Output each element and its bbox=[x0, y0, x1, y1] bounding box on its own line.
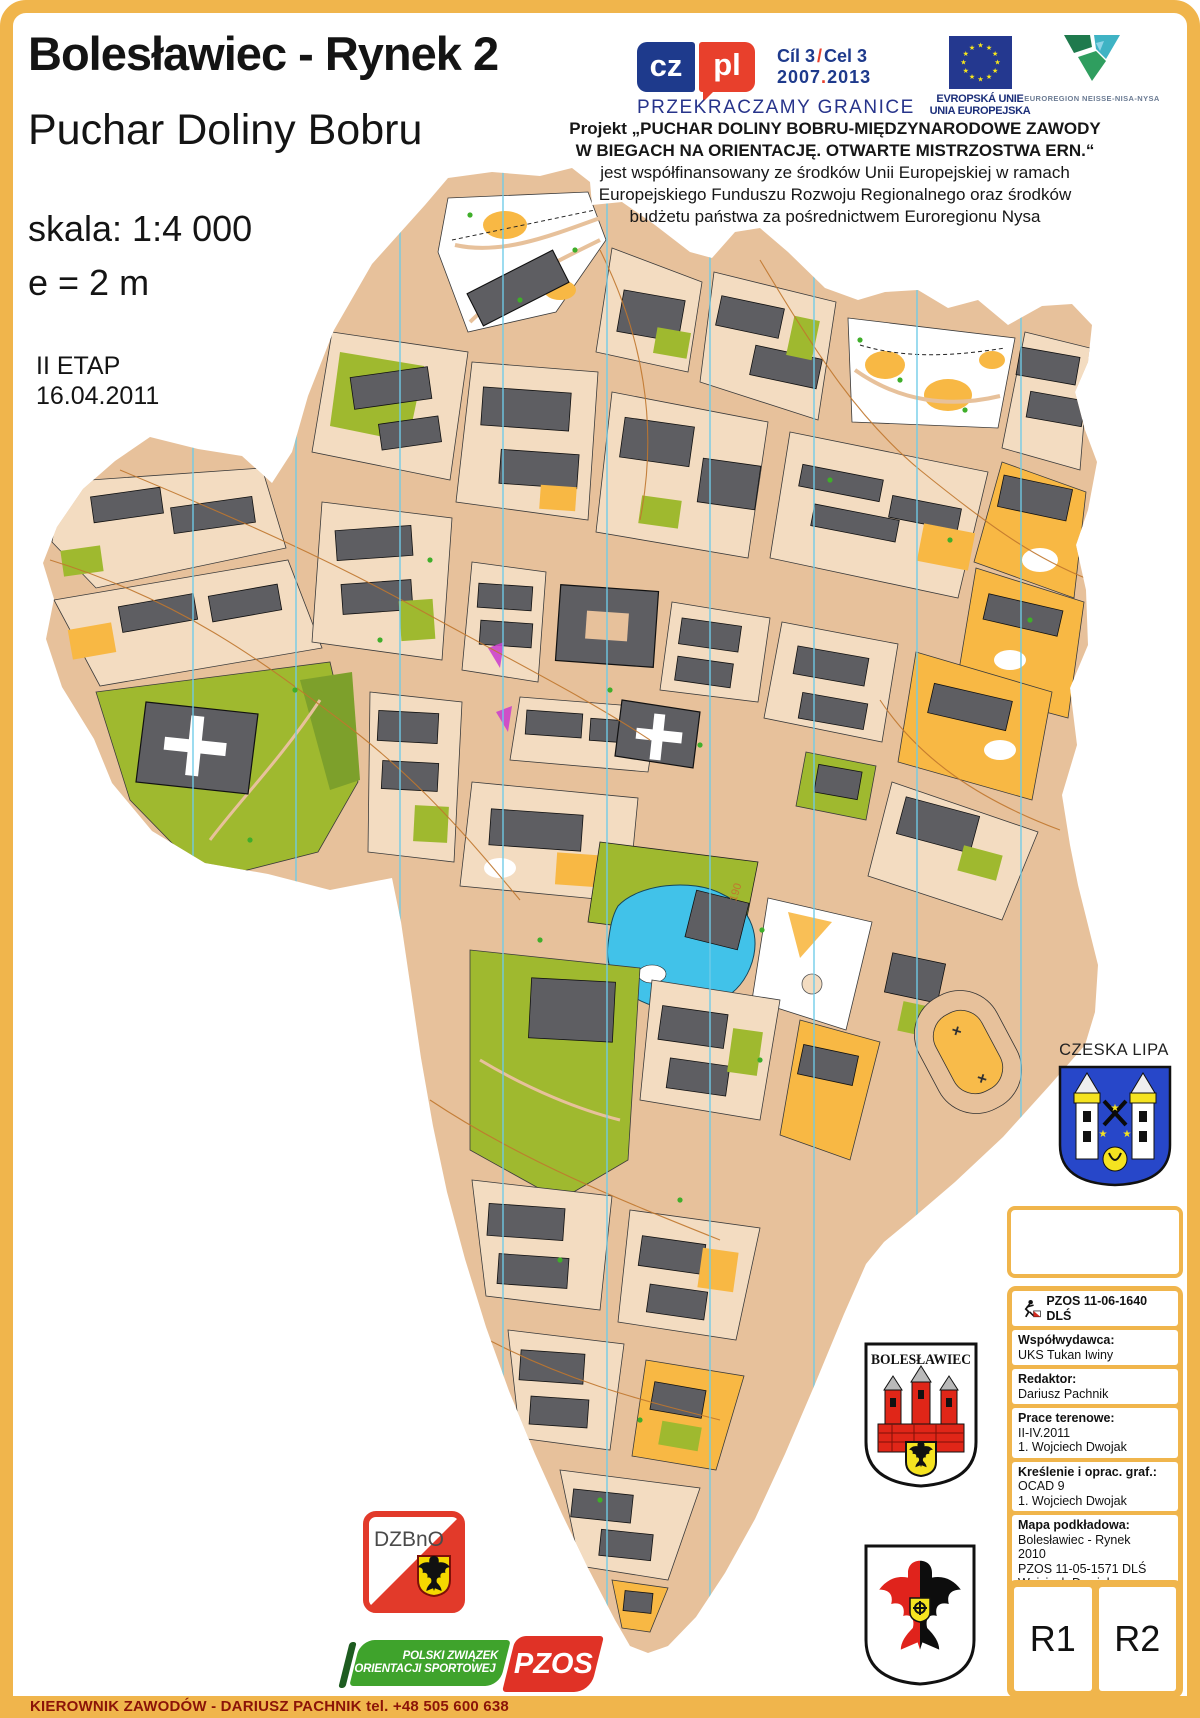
pzos-name-panel: POLSKI ZWIĄZEK ORIENTACJI SPORTOWEJ bbox=[349, 1640, 510, 1686]
route-r1-box: R1 bbox=[1014, 1587, 1092, 1691]
svg-text:★: ★ bbox=[1099, 1129, 1108, 1140]
map-info-table: PZOS 11-06-1640 DLŚ Współwydawca: UKS Tu… bbox=[1007, 1286, 1183, 1599]
info-row-drawing: Kreślenie i oprac. graf.: OCAD 9 1. Wojc… bbox=[1012, 1462, 1178, 1512]
pzos-logo: POLSKI ZWIĄZEK ORIENTACJI SPORTOWEJ PZOS bbox=[344, 1636, 594, 1694]
project-funding-note: Projekt „PUCHAR DOLINY BOBRU-MIĘDZYNAROD… bbox=[560, 118, 1110, 228]
czeska-lipa-crest: ★★★ bbox=[1056, 1063, 1174, 1192]
church-symbol-west bbox=[136, 702, 258, 794]
dzbno-eagle-shield bbox=[418, 1556, 450, 1596]
lower-silesia-crest bbox=[860, 1540, 980, 1693]
svg-text:★: ★ bbox=[1123, 1129, 1132, 1140]
dzbno-logo: DZBnO bbox=[362, 1510, 466, 1619]
info-row-fieldwork: Prace terenowe: II-IV.2011 1. Wojciech D… bbox=[1012, 1408, 1178, 1458]
orienteering-runner-icon bbox=[1018, 1299, 1041, 1319]
map-sheet: ✕ ✕ bbox=[0, 0, 1200, 1718]
boleslawiec-castle bbox=[878, 1366, 964, 1452]
route-r2-box: R2 bbox=[1099, 1587, 1177, 1691]
info-row-editor: Redaktor: Dariusz Pachnik bbox=[1012, 1369, 1178, 1404]
church-symbol-east bbox=[615, 700, 700, 768]
pzos-abbr-panel: PZOS bbox=[502, 1636, 604, 1692]
svg-text:★: ★ bbox=[1111, 1103, 1120, 1114]
dzbno-label: DZBnO bbox=[374, 1528, 444, 1551]
map-code: PZOS 11-06-1640 DLŚ bbox=[1046, 1294, 1172, 1323]
czeska-lipa-label: CZESKA LIPA bbox=[1044, 1041, 1184, 1060]
route-boxes: R1 R2 bbox=[1007, 1580, 1183, 1698]
info-row-publisher: Współwydawca: UKS Tukan Iwiny bbox=[1012, 1330, 1178, 1365]
map-code-row: PZOS 11-06-1640 DLŚ bbox=[1012, 1291, 1178, 1326]
boleslawiec-eagle-shield bbox=[906, 1441, 936, 1476]
blank-course-box bbox=[1007, 1206, 1183, 1278]
boleslawiec-crest: BOLESŁAWIEC bbox=[860, 1338, 982, 1495]
footer-bar: KIEROWNIK ZAWODÓW - DARIUSZ PACHNIK tel.… bbox=[0, 1696, 1200, 1718]
silesia-center-shield bbox=[910, 1598, 930, 1622]
event-director-note: KIEROWNIK ZAWODÓW - DARIUSZ PACHNIK tel.… bbox=[30, 1696, 509, 1718]
